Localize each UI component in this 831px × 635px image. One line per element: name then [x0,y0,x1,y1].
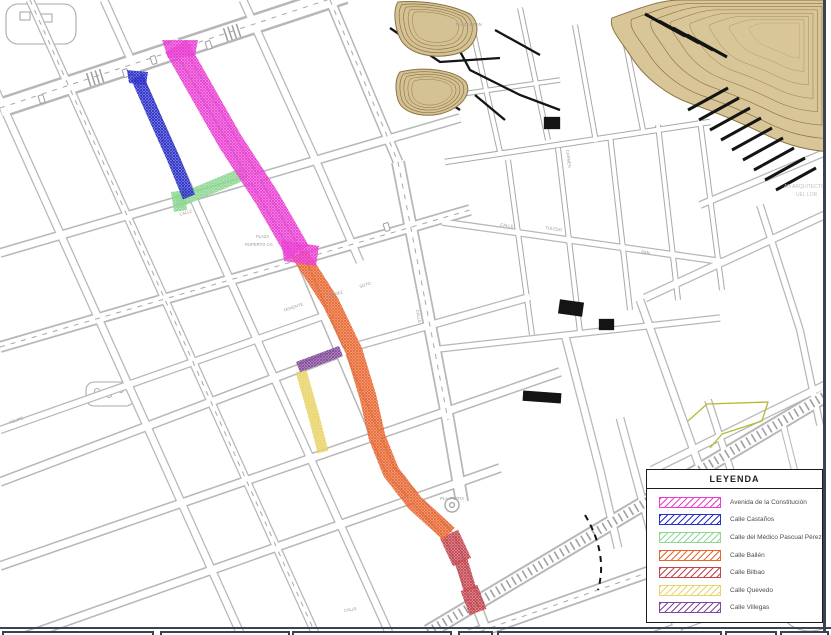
titleblock-cell [292,631,452,635]
titleblock-cell [780,631,829,635]
legend-color-swatch [659,585,721,596]
watermark-line-1: AN ARQUITECTO [784,184,825,190]
map-label-ruperto: RUPERTO CH. [245,242,274,247]
map-label-plaza: PLAZA [256,234,269,239]
legend-color-swatch [659,514,721,525]
legend-rows: Avenida de la Constitución Calle Castaño… [647,489,822,621]
legend-item: Calle del Médico Pascual Pérez [647,532,822,543]
titleblock-cell [2,631,154,635]
legend-item-label: Avenida de la Constitución [730,499,807,506]
avenue-constitucion-top-flare [162,40,198,58]
legend-color-swatch [659,602,721,613]
map-viewport: { "legend": { "title": "LEYENDA", "items… [0,0,831,635]
street-castanos-flare [127,70,148,85]
legend-item: Calle Villegas [647,602,822,613]
titleblock-cell [497,631,722,635]
street-bilbao [449,534,462,562]
street-bilbao-end [469,588,478,612]
street-bilbao-mid [461,560,470,590]
watermark-line-2: UEL LOR [796,192,818,198]
legend-item: Calle Castaños [647,514,822,525]
sheet-border-right [823,0,826,635]
legend-item: Calle Bailén [647,550,822,561]
legend-title: LEYENDA [647,470,822,489]
legend-item-label: Calle Bilbao [730,569,765,576]
legend-item: Avenida de la Constitución [647,497,822,508]
legend-item: Calle Quevedo [647,585,822,596]
legend-item-label: Calle Bailén [730,552,765,559]
legend-color-swatch [659,567,721,578]
legend-color-swatch [659,532,721,543]
legend-color-swatch [659,550,721,561]
sheet-margin-right [826,0,831,635]
map-label-plaza-eran: PLAZA ERAN [456,22,482,27]
titleblock-cell [725,631,777,635]
sheet-border-bottom [0,627,831,630]
legend-item-label: Calle Villegas [730,604,769,611]
map-label-pla-porta: PLA. PORTA [440,496,464,501]
titleblock-cell [458,631,493,635]
legend-item-label: Calle del Médico Pascual Pérez [730,534,822,541]
legend-color-swatch [659,497,721,508]
legend-item-label: Calle Quevedo [730,587,773,594]
legend-item: Calle Bilbao [647,567,822,578]
legend: LEYENDA Avenida de la Constitución Calle… [646,469,823,623]
titleblock-cell [160,631,290,635]
legend-item-label: Calle Castaños [730,516,774,523]
